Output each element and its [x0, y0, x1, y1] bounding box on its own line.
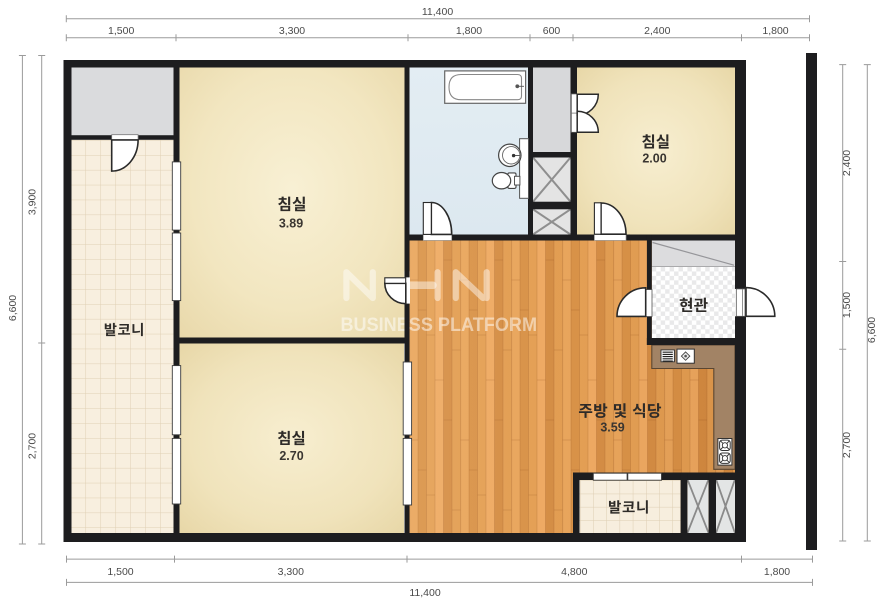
svg-text:1,500: 1,500: [108, 25, 134, 37]
svg-text:6,600: 6,600: [7, 295, 19, 321]
svg-text:3,900: 3,900: [27, 189, 39, 215]
svg-text:2.70: 2.70: [279, 449, 303, 463]
svg-text:2,400: 2,400: [644, 25, 670, 37]
svg-text:2,400: 2,400: [841, 150, 853, 176]
svg-text:1,500: 1,500: [107, 566, 133, 578]
svg-text:600: 600: [543, 25, 561, 37]
svg-text:3,300: 3,300: [278, 566, 304, 578]
svg-text:BUSINESS PLATFORM: BUSINESS PLATFORM: [341, 315, 538, 336]
svg-text:11,400: 11,400: [409, 587, 440, 599]
svg-text:1,800: 1,800: [456, 25, 482, 37]
svg-text:2,700: 2,700: [27, 433, 39, 459]
svg-text:1,500: 1,500: [841, 292, 853, 318]
svg-text:2.00: 2.00: [642, 152, 666, 166]
svg-text:4,800: 4,800: [561, 566, 587, 578]
svg-text:3.59: 3.59: [600, 421, 624, 435]
svg-text:1,800: 1,800: [762, 25, 788, 37]
svg-text:3,300: 3,300: [279, 25, 305, 37]
svg-text:3.89: 3.89: [279, 217, 303, 231]
svg-text:1,800: 1,800: [764, 566, 790, 578]
svg-text:11,400: 11,400: [422, 6, 453, 18]
svg-text:2,700: 2,700: [841, 432, 853, 458]
svg-text:6,600: 6,600: [866, 317, 878, 343]
